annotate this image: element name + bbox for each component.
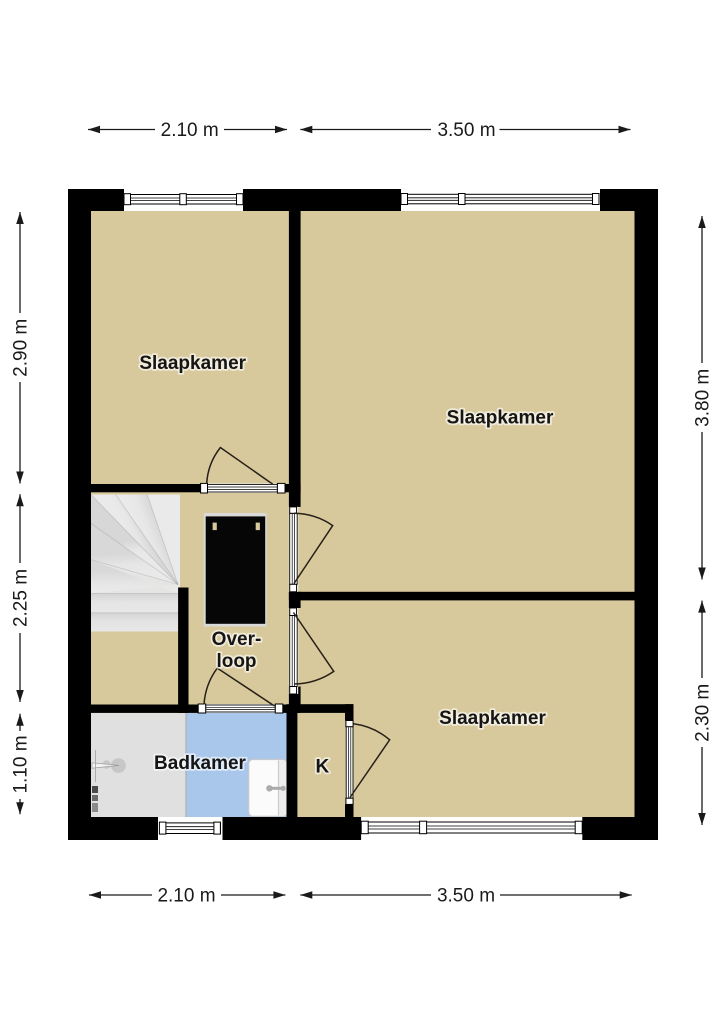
- svg-text:K: K: [316, 757, 330, 778]
- svg-text:Slaapkamer: Slaapkamer: [447, 408, 554, 429]
- svg-text:1.10 m: 1.10 m: [10, 735, 31, 793]
- svg-text:Badkamer: Badkamer: [154, 753, 246, 774]
- svg-text:Slaapkamer: Slaapkamer: [139, 353, 246, 374]
- svg-text:loop: loop: [216, 651, 256, 672]
- svg-text:3.50 m: 3.50 m: [437, 885, 495, 906]
- svg-text:2.30 m: 2.30 m: [692, 684, 713, 742]
- svg-text:Over-: Over-: [212, 629, 262, 650]
- svg-text:2.10 m: 2.10 m: [161, 120, 219, 141]
- svg-text:2.90 m: 2.90 m: [10, 319, 31, 377]
- svg-text:3.80 m: 3.80 m: [692, 369, 713, 427]
- svg-text:3.50 m: 3.50 m: [437, 120, 495, 141]
- svg-text:2.10 m: 2.10 m: [157, 885, 215, 906]
- svg-text:Slaapkamer: Slaapkamer: [439, 708, 546, 729]
- svg-text:2.25 m: 2.25 m: [10, 569, 31, 627]
